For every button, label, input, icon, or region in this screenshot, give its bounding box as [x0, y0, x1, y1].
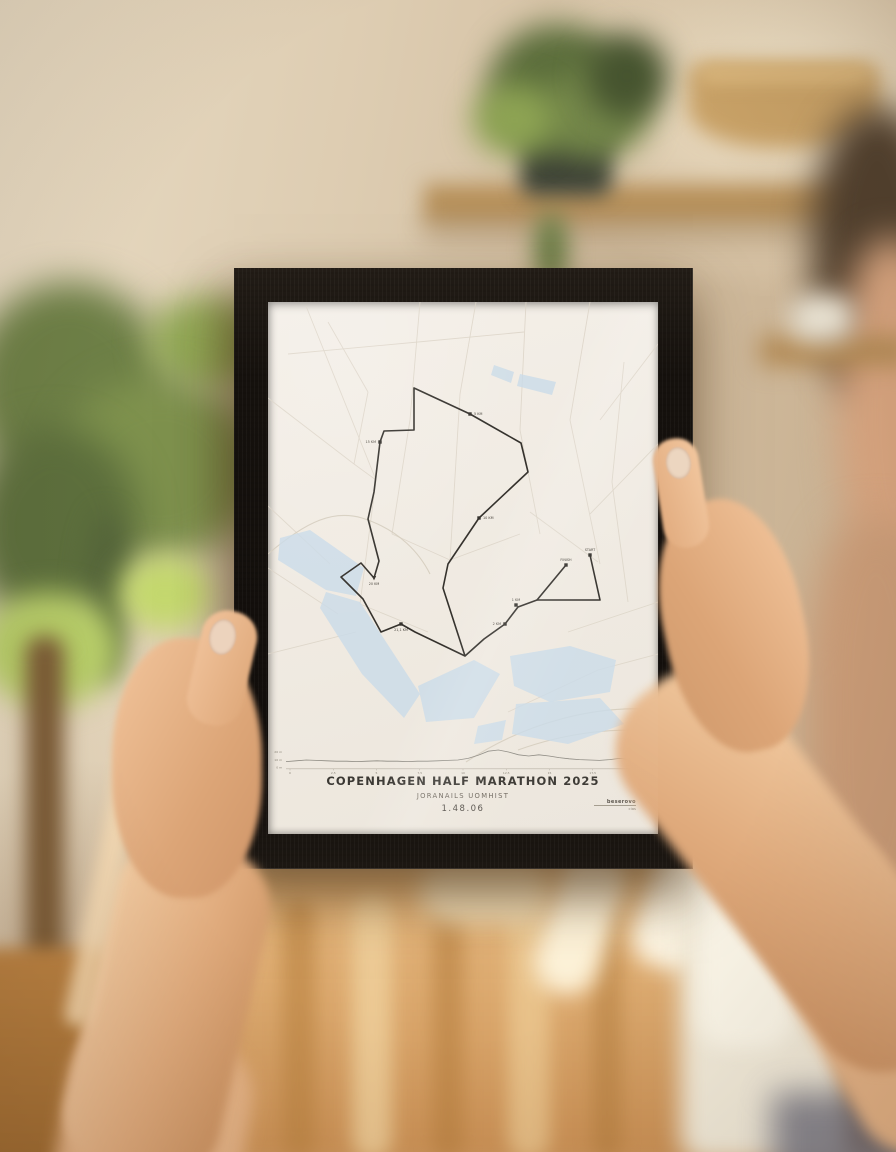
- km-marker: [378, 440, 381, 443]
- blanket-fold: [282, 900, 316, 1152]
- km-marker-label: 20 KM: [369, 582, 380, 586]
- elevation-y-label: 20 m: [274, 750, 282, 754]
- km-marker-label: 5 KM: [474, 412, 482, 416]
- houseplant-highlight: [118, 556, 213, 631]
- map-street: [328, 322, 368, 392]
- km-marker: [588, 553, 591, 556]
- km-marker: [503, 622, 506, 625]
- km-marker: [399, 622, 402, 625]
- poster-title: COPENHAGEN HALF MARATHON 2025: [268, 774, 658, 788]
- map-street: [530, 512, 598, 562]
- map-street: [520, 302, 526, 430]
- map-street: [450, 394, 460, 560]
- map-street: [570, 302, 590, 420]
- map-street: [600, 344, 658, 420]
- race-route-line: [341, 388, 600, 656]
- km-marker-label: 10 KM: [483, 516, 494, 520]
- map-street: [568, 602, 658, 632]
- km-marker: [468, 412, 471, 415]
- map-street: [268, 398, 354, 464]
- map-water: [517, 374, 556, 395]
- wooden-bowl-rim: [700, 64, 868, 84]
- race-route-finish-branch: [537, 565, 566, 600]
- km-marker: [477, 516, 480, 519]
- km-marker: [514, 603, 517, 606]
- marathon-map-poster: STARTFINISH1 KM2 KM5 KM10 KM15 KM20 KM21…: [268, 302, 658, 834]
- map-street: [392, 420, 410, 534]
- map-street: [590, 444, 658, 514]
- white-vase: [790, 294, 854, 342]
- map-water: [512, 698, 624, 744]
- poster-brand-mark: beserovo cias: [566, 799, 636, 812]
- km-marker-label: 21,1 KM: [394, 628, 408, 632]
- shelf-plant-foliage: [472, 84, 557, 156]
- km-marker: [372, 576, 376, 580]
- map-water: [510, 646, 616, 702]
- km-marker-label: START: [585, 548, 596, 552]
- map-street: [410, 302, 420, 420]
- km-marker: [564, 563, 567, 566]
- blanket-fold: [432, 902, 464, 1152]
- brand-line2: cias: [594, 805, 636, 812]
- map-water: [491, 365, 514, 383]
- map-street: [288, 342, 418, 354]
- shelf-plant-foliage: [586, 34, 668, 118]
- map-street: [570, 420, 600, 564]
- map-street: [450, 534, 520, 560]
- km-marker-label: 15 KM: [365, 440, 376, 444]
- map-street: [612, 362, 624, 482]
- map-street: [418, 332, 524, 342]
- map-water: [474, 720, 506, 744]
- elevation-y-label: 0 m: [276, 766, 282, 770]
- map-street: [354, 392, 368, 464]
- map-street: [520, 430, 540, 534]
- photo-scene: STARTFINISH1 KM2 KM5 KM10 KM15 KM20 KM21…: [0, 0, 896, 1152]
- km-marker-label: FINISH: [560, 558, 572, 562]
- km-marker-label: 1 KM: [512, 598, 520, 602]
- houseplant-trunk: [26, 636, 64, 986]
- map-street: [612, 482, 628, 602]
- blanket-fold: [352, 892, 392, 1152]
- elevation-y-label: 10 m: [274, 758, 282, 762]
- map-street: [460, 302, 476, 394]
- km-marker-label: 2 KM: [493, 622, 501, 626]
- map-water: [418, 660, 500, 722]
- elevation-profile-line: [286, 750, 640, 762]
- route-map: STARTFINISH1 KM2 KM5 KM10 KM15 KM20 KM21…: [268, 302, 658, 777]
